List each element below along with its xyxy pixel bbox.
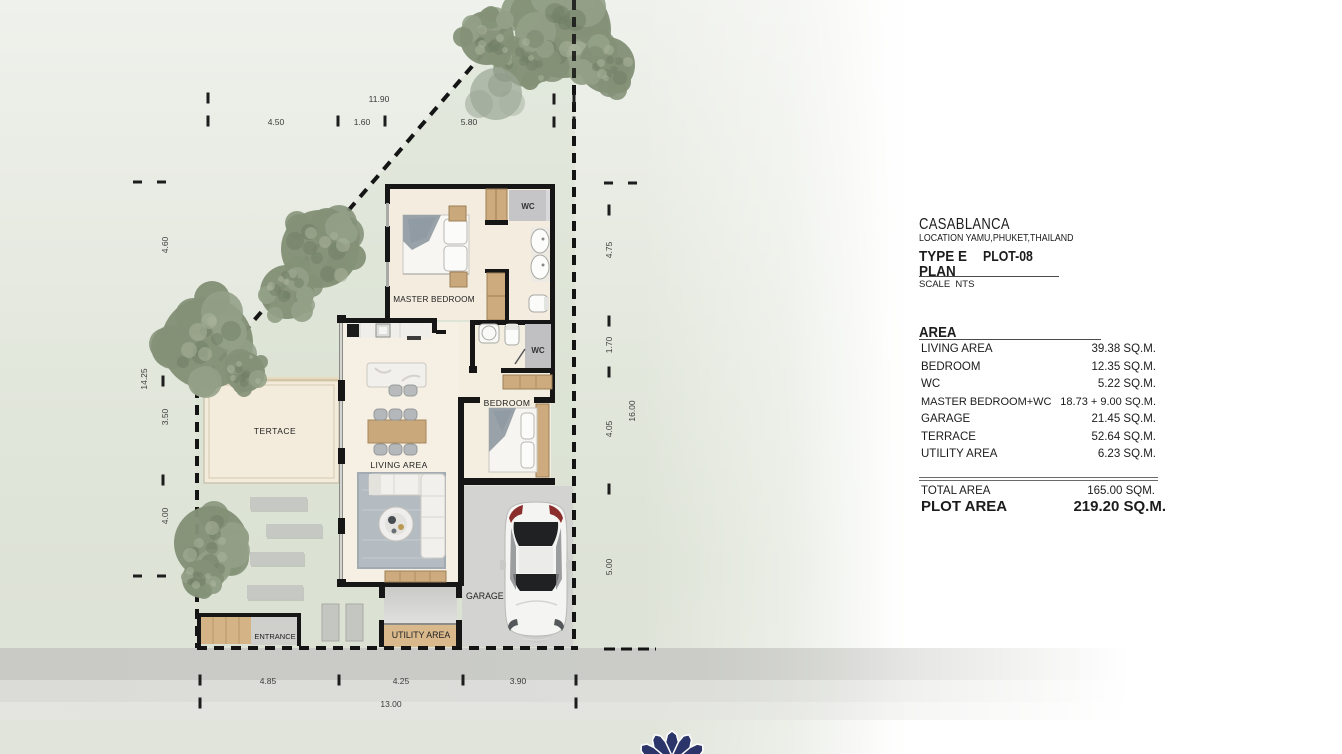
svg-text:WC: WC	[531, 346, 545, 355]
svg-text:3.90: 3.90	[510, 676, 527, 686]
svg-text:4.25: 4.25	[393, 676, 410, 686]
svg-text:BEDROOM: BEDROOM	[484, 398, 531, 408]
svg-text:1.60: 1.60	[354, 117, 371, 127]
svg-text:LIVING AREA: LIVING AREA	[370, 460, 427, 470]
svg-text:5.00: 5.00	[604, 558, 614, 575]
svg-text:4.75: 4.75	[604, 241, 614, 258]
svg-text:UTILITY AREA: UTILITY AREA	[392, 630, 451, 640]
svg-text:16.00: 16.00	[627, 400, 637, 422]
svg-text:13.00: 13.00	[380, 699, 402, 709]
svg-text:11.90: 11.90	[369, 94, 390, 104]
svg-text:GARAGE: GARAGE	[466, 591, 504, 601]
svg-text:5.80: 5.80	[461, 117, 478, 127]
svg-text:4.60: 4.60	[160, 236, 170, 253]
svg-text:TERTACE: TERTACE	[254, 426, 296, 436]
svg-text:4.05: 4.05	[604, 420, 614, 437]
svg-text:4.50: 4.50	[268, 117, 285, 127]
svg-text:MASTER BEDROOM: MASTER BEDROOM	[393, 295, 475, 304]
svg-text:WC: WC	[521, 202, 535, 211]
svg-text:3.50: 3.50	[160, 408, 170, 425]
svg-text:ENTRANCE: ENTRANCE	[254, 632, 295, 641]
svg-text:1.70: 1.70	[604, 336, 614, 353]
svg-text:14.25: 14.25	[139, 368, 149, 390]
svg-text:4.85: 4.85	[260, 676, 277, 686]
svg-text:4.00: 4.00	[160, 507, 170, 524]
